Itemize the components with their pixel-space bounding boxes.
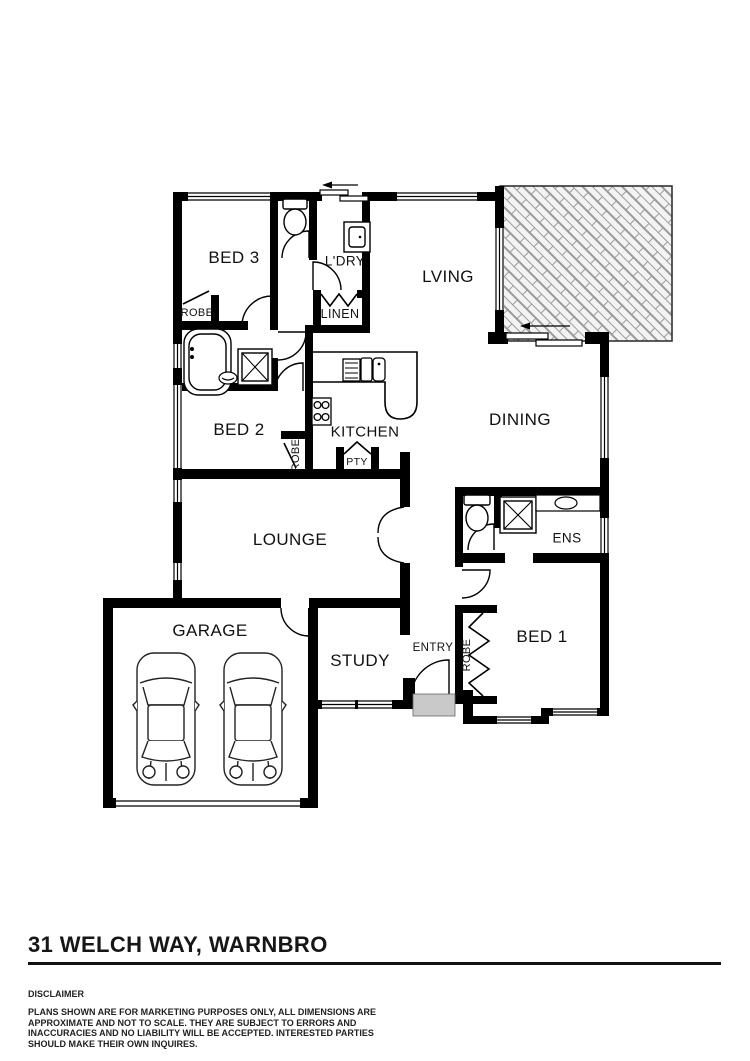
laundry-trough-icon <box>344 222 370 252</box>
kitchen-sink-icon <box>343 358 385 381</box>
address-divider <box>28 962 721 965</box>
toilet-icon <box>283 199 307 235</box>
room-label-bed3-robe: ROBE <box>181 307 214 319</box>
disclaimer-text: PLANS SHOWN ARE FOR MARKETING PURPOSES O… <box>28 1007 396 1049</box>
garage-internal-door <box>281 608 309 636</box>
disclaimer-heading: DISCLAIMER <box>28 989 84 999</box>
lounge-french-doors <box>378 507 404 563</box>
room-label-ens: ENS <box>553 531 582 546</box>
room-label-bed3: BED 3 <box>208 248 259 268</box>
entry-door <box>411 660 449 698</box>
bed1-door <box>462 570 490 598</box>
room-label-pty: PTY <box>346 456 368 468</box>
cooktop-icon <box>312 398 331 425</box>
room-label-ldry: L'DRY <box>325 254 365 269</box>
room-label-lounge: LOUNGE <box>253 530 327 550</box>
floorplan-page: BED 3 ROBE L'DRY LINEN LVING BED 2 ROBE … <box>0 0 750 1061</box>
room-label-garage: GARAGE <box>172 621 247 641</box>
room-label-lving: LVING <box>422 267 474 287</box>
linen-bifold-doors <box>321 294 357 306</box>
room-label-study: STUDY <box>330 651 390 671</box>
room-label-bed2-robe: ROBE <box>290 439 302 472</box>
floorplan-drawing <box>0 0 750 1061</box>
address-title: 31 WELCH WAY, WARNBRO <box>28 932 328 958</box>
room-label-bed1-robe: ROBE <box>461 639 473 672</box>
car-icon <box>133 653 199 785</box>
room-label-bed2: BED 2 <box>213 420 264 440</box>
room-label-bed1: BED 1 <box>516 627 567 647</box>
ens-toilet-icon <box>464 495 490 531</box>
bathroom-toilet-icon <box>219 372 237 384</box>
patio-brick-area <box>500 186 672 341</box>
pantry-doors <box>344 442 371 454</box>
room-label-linen: LINEN <box>321 307 360 321</box>
ens-shower-icon <box>500 497 536 533</box>
bathtub-icon <box>184 329 231 395</box>
bed3-robe-door <box>183 291 209 304</box>
room-label-entry: ENTRY <box>413 642 454 654</box>
bathroom-door <box>278 332 306 360</box>
room-label-kitchen: KITCHEN <box>331 424 400 441</box>
sliding-door-top <box>320 182 368 202</box>
car-icon <box>220 653 286 785</box>
shower-icon <box>238 349 272 385</box>
garage-door <box>116 801 300 806</box>
entry-porch-step <box>413 694 455 716</box>
ens-vanity-basin-icon <box>536 495 600 511</box>
room-label-dining: DINING <box>489 410 551 430</box>
bed2-door <box>275 363 303 391</box>
